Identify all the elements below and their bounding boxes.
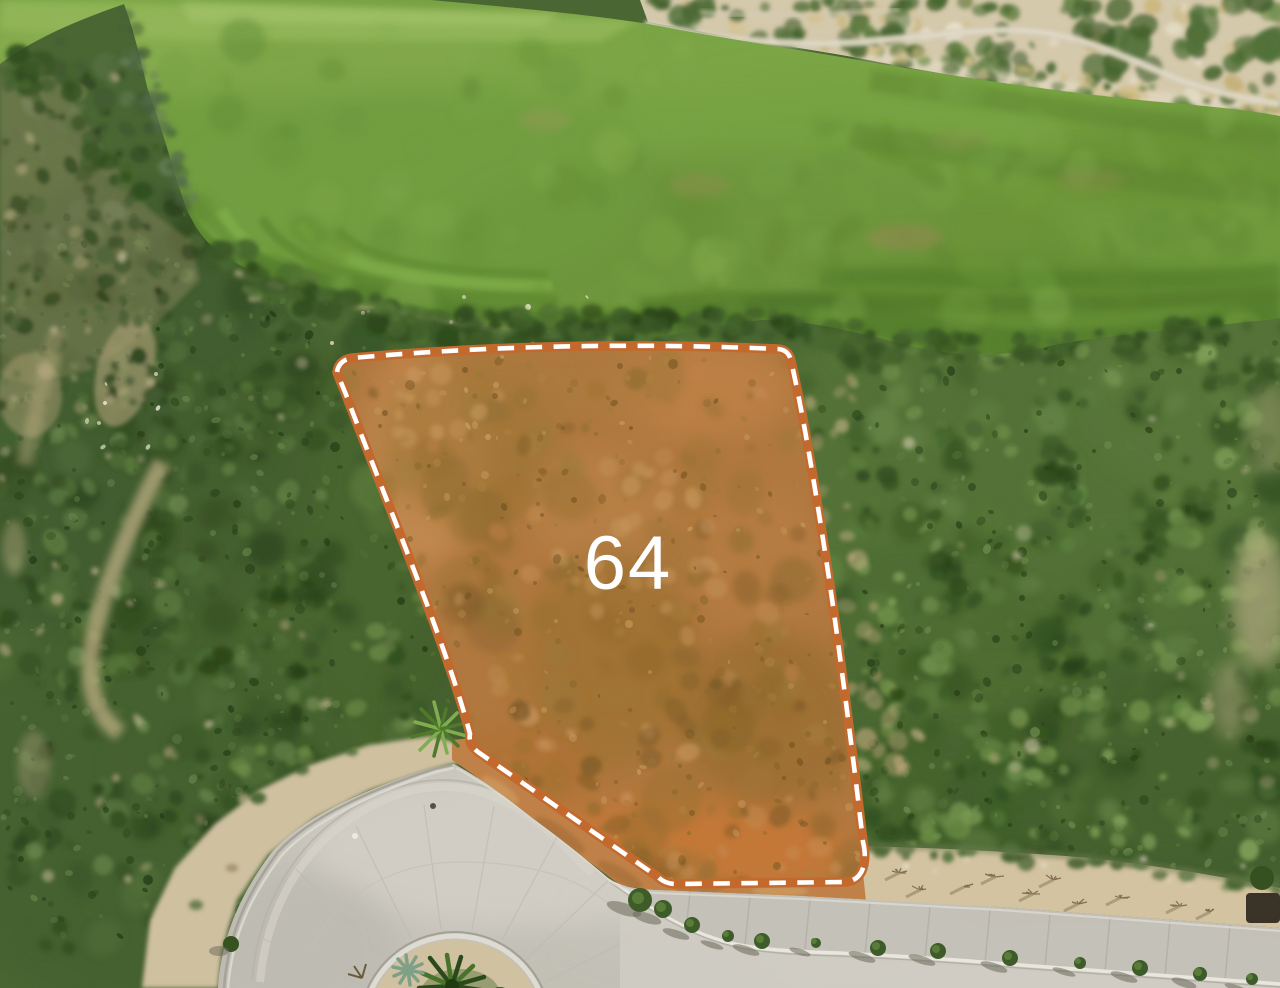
svg-text:64: 64 [584, 521, 673, 606]
